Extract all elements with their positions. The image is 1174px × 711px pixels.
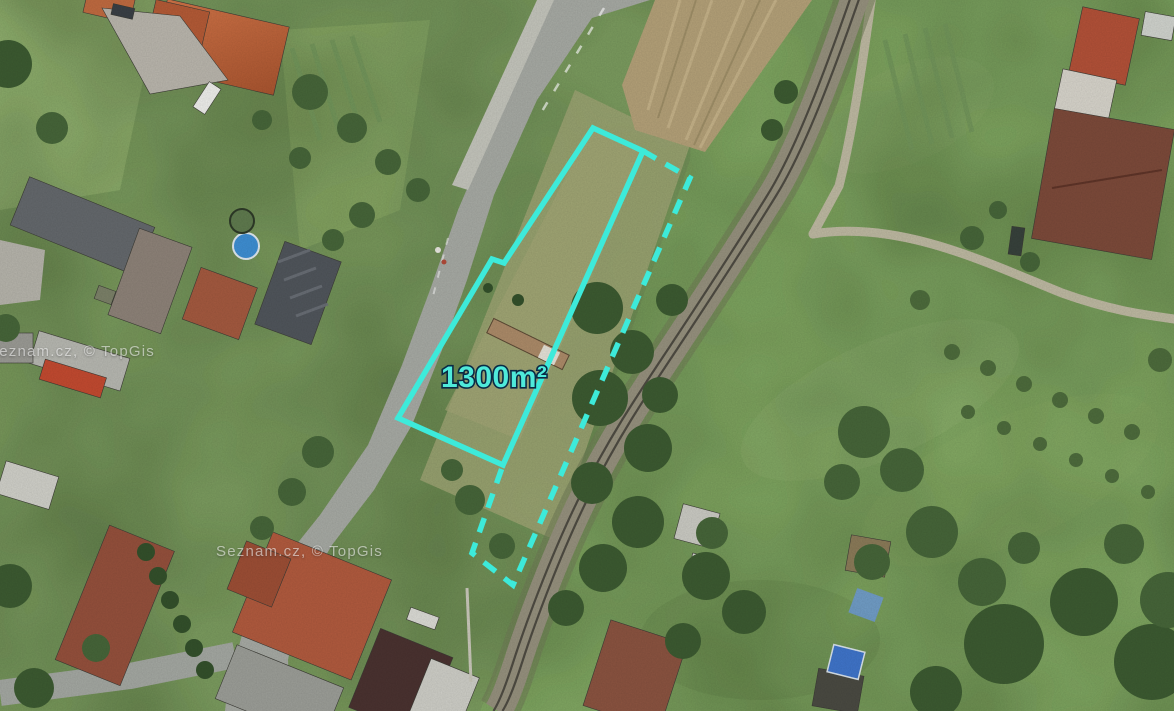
aerial-map-canvas[interactable]: 1300m² Seznam.cz, © TopGis Seznam.cz, © … [0,0,1174,711]
map-watermark: Seznam.cz, © TopGis [0,343,155,360]
satellite-imagery [0,0,1174,711]
map-watermark: Seznam.cz, © TopGis [216,543,383,560]
photo-grain [0,0,1174,711]
